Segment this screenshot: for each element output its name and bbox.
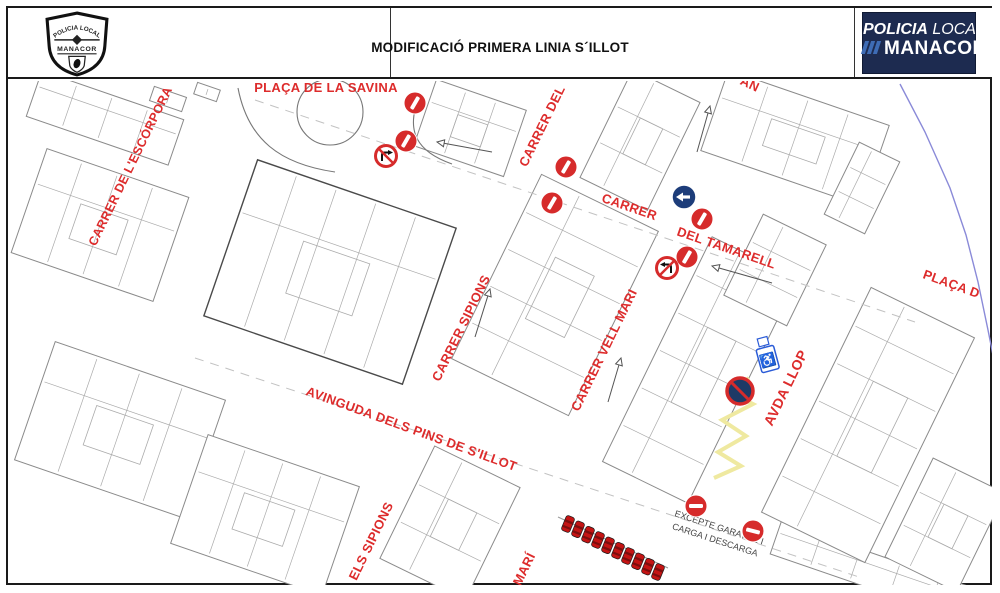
street-label-carrer-del: CARRER DEL	[516, 83, 568, 169]
header: POLICIA LOCAL MANACOR MODIFICACIÓ PRIMER…	[8, 8, 992, 79]
no-entry-sign	[676, 246, 698, 268]
page-title: MODIFICACIÓ PRIMERA LINIA S´ILLOT	[8, 40, 992, 55]
logo-line1: POLICIA LOCAL	[863, 22, 975, 38]
no-entry-sign	[541, 192, 563, 214]
no-entry-sign	[685, 495, 707, 517]
no-entry-sign	[742, 520, 764, 542]
arrow-head	[705, 106, 712, 114]
arrow-head	[616, 358, 623, 366]
no-right-turn-sign	[376, 146, 397, 167]
street-label-avinguda: AVINGUDA DELS PINS DE S'ILLOT	[304, 384, 519, 475]
logo-manacor: MANACOR	[884, 38, 987, 59]
building-outline	[204, 160, 456, 384]
building-outline	[414, 81, 527, 177]
street-map: EXCEPTE GARATGE ICARGA I DESCARGAPLAÇA D…	[8, 81, 992, 585]
building-block	[414, 81, 527, 177]
street-label-placa-savina: PLAÇA DE LA SAVINA	[254, 81, 398, 95]
no-entry-sign	[691, 208, 713, 230]
logo-line2: MANACOR	[863, 38, 975, 59]
one-way-sign	[672, 185, 696, 209]
disabled-parking-sign: ♿	[753, 335, 779, 373]
no-entry-bar	[689, 504, 703, 508]
logo-local: LOCAL	[932, 21, 984, 38]
sign-plate-small	[757, 336, 769, 346]
plaza-boundary	[238, 88, 335, 172]
logo-bars-icon	[863, 38, 881, 59]
no-entry-sign	[555, 156, 577, 178]
no-entry-sign	[404, 92, 426, 114]
logo-policia: POLICIA	[863, 21, 928, 38]
no-stopping-sign	[727, 378, 753, 404]
policia-local-logo: POLICIA LOCAL MANACOR	[862, 12, 976, 74]
no-entry-sign	[395, 130, 417, 152]
direction-arrow	[608, 358, 622, 402]
no-left-turn-sign	[657, 258, 678, 279]
building-block	[204, 160, 456, 384]
building-block	[194, 82, 221, 101]
street-label-mari: MARÍ	[510, 550, 539, 585]
plan-page: POLICIA LOCAL MANACOR MODIFICACIÓ PRIMER…	[0, 0, 1000, 593]
street-label-placa-d: PLAÇA D	[921, 267, 982, 301]
